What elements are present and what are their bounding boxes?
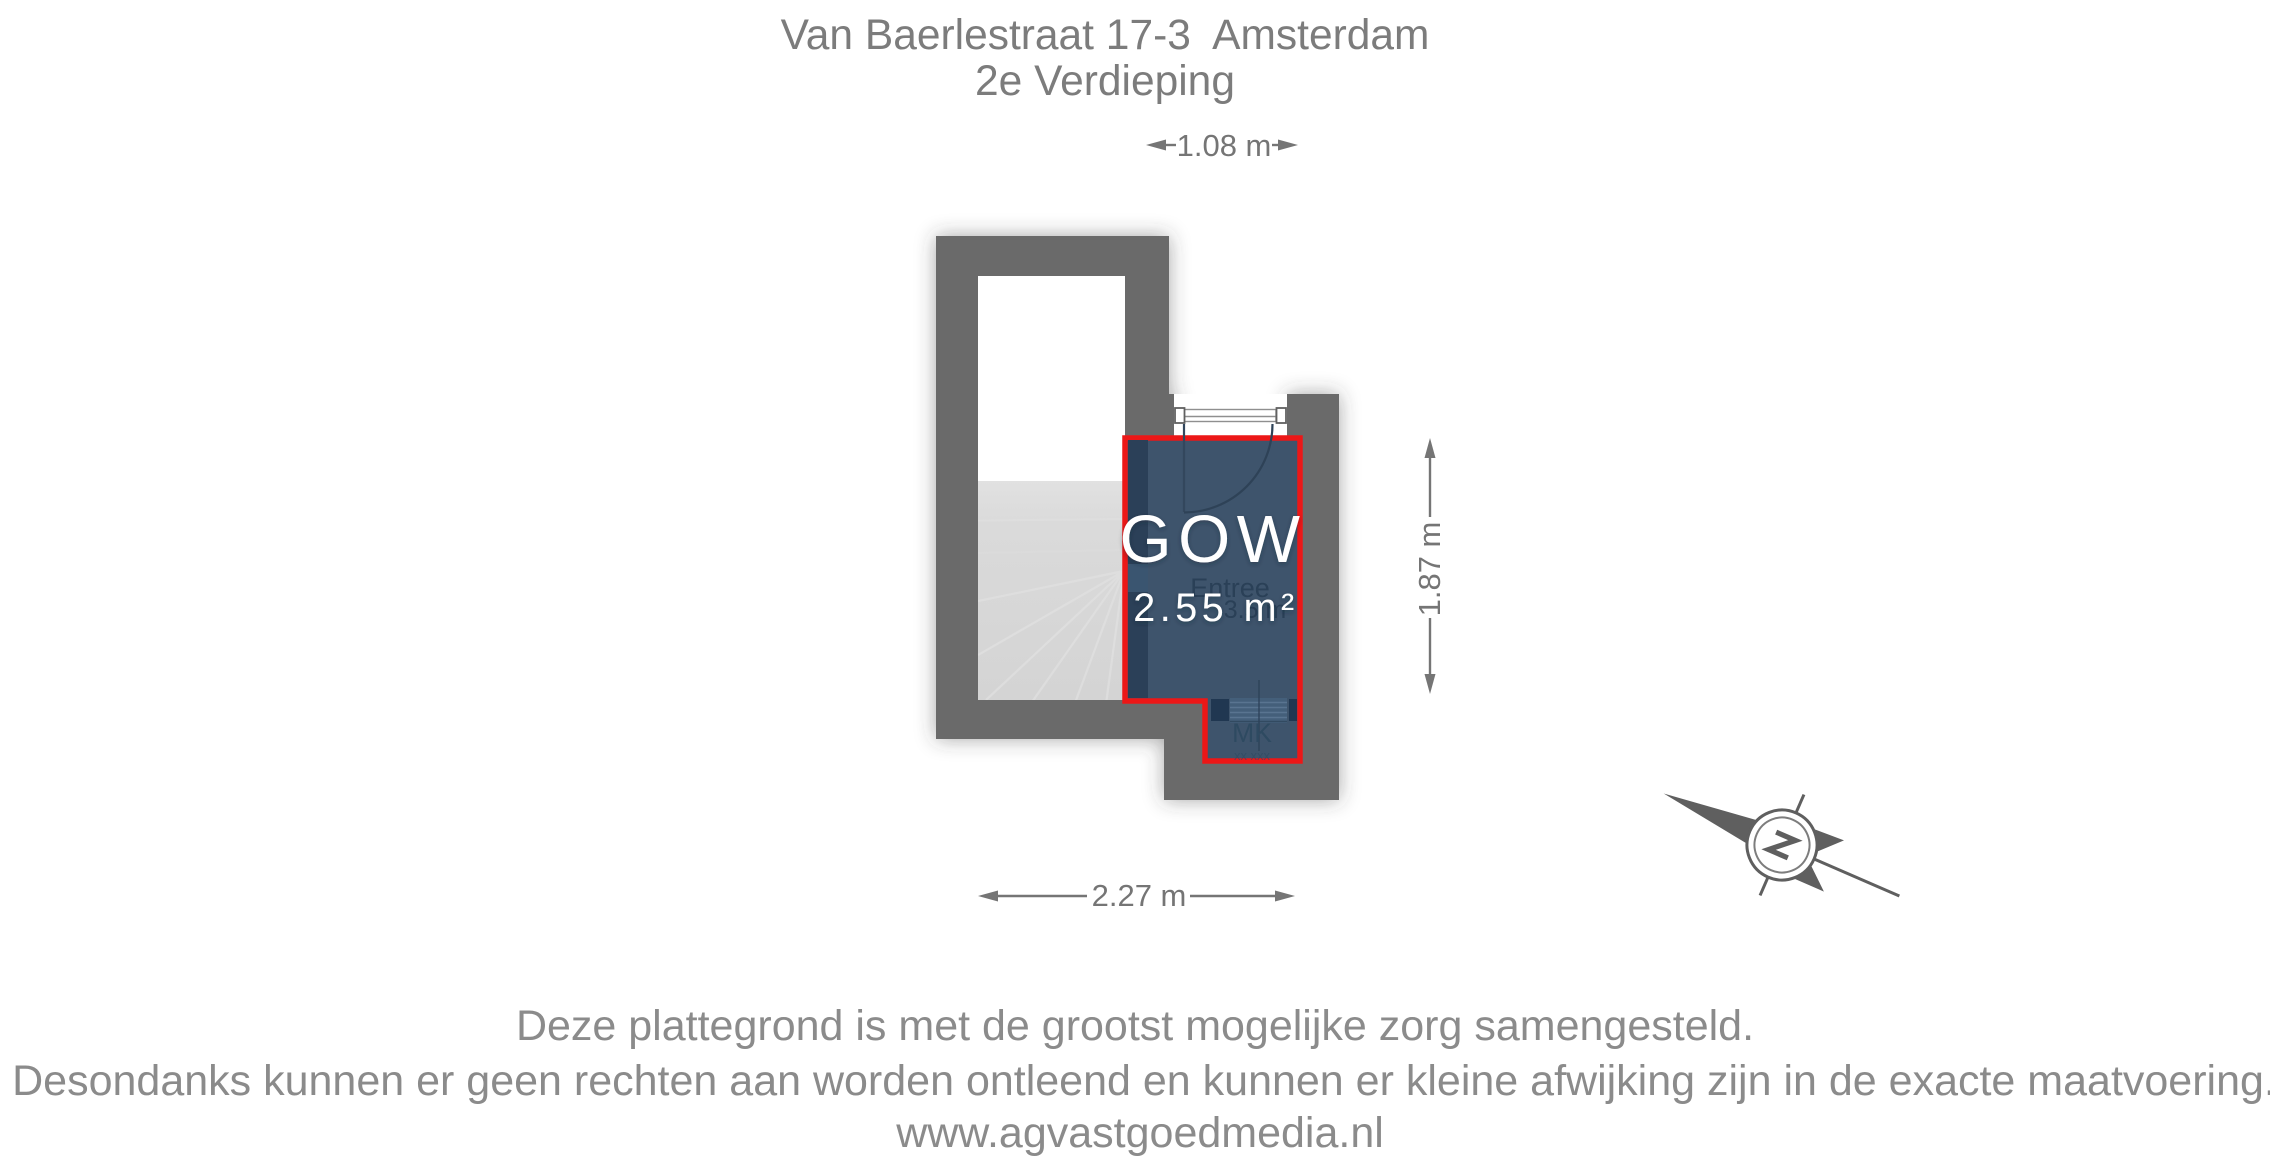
svg-text:2.27 m: 2.27 m — [1092, 878, 1187, 913]
svg-text:MK: MK — [1232, 718, 1272, 748]
svg-text:GOW: GOW — [1120, 502, 1307, 577]
svg-text:1.87 m: 1.87 m — [1412, 522, 1447, 617]
svg-text:xx xxx: xx xxx — [1234, 748, 1271, 763]
svg-text:1.08 m: 1.08 m — [1177, 128, 1272, 163]
svg-text:2.55 m²: 2.55 m² — [1133, 586, 1298, 630]
